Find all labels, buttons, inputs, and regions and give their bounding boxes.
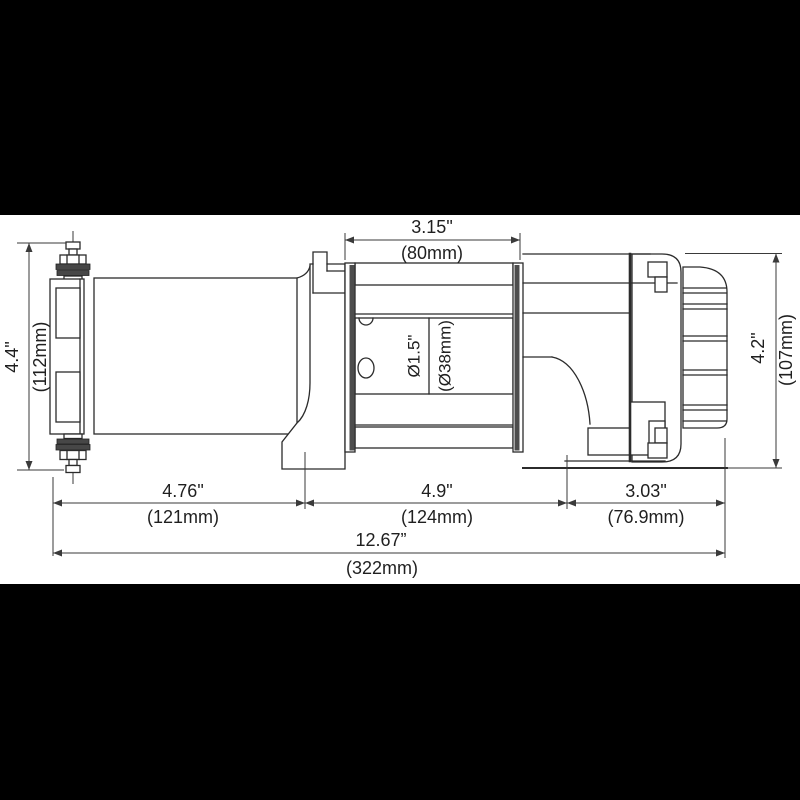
gear-section-mm-label: (76.9mm) (607, 507, 684, 527)
gear-section-inches-label: 3.03" (625, 481, 666, 501)
rope-diameter-mm-label: (Ø38mm) (436, 320, 455, 392)
upper-tie-bar (355, 263, 513, 285)
rope-diameter-inches-label: Ø1.5" (405, 335, 424, 378)
motor-housing (94, 278, 297, 434)
drum-section-inches-label: 4.9" (421, 481, 452, 501)
clutch-lever-top (648, 262, 667, 277)
left-height-mm-label: (112mm) (30, 322, 50, 393)
overall-width-mm-label: (322mm) (346, 558, 418, 578)
right-height-inches-label: 4.2" (748, 332, 768, 363)
fairlead-plate-and-bolts (50, 231, 90, 484)
right-foot-block (588, 428, 630, 455)
drum-width-mm-label: (80mm) (401, 243, 463, 263)
right-height-mm-label: (107mm) (776, 314, 796, 386)
winch-dimension-drawing: Ø1.5" (Ø38mm) (0, 0, 800, 800)
drum-section-mm-label: (124mm) (401, 507, 473, 527)
left-height-inches-label: 4.4" (2, 341, 22, 372)
motor-section-mm-label: (121mm) (147, 507, 219, 527)
drum-barrel (355, 318, 513, 394)
drum-width-inches-label: 3.15" (411, 217, 452, 237)
drum-hole (358, 358, 374, 378)
ribbed-end-cap (683, 267, 727, 428)
lower-tie-bar (355, 427, 513, 448)
motor-section-inches-label: 4.76" (162, 481, 203, 501)
plate-lower-slot (56, 372, 80, 422)
screenshot-root: Ø1.5" (Ø38mm) (0, 0, 800, 800)
plate-upper-slot (56, 288, 80, 338)
overall-width-inches-label: 12.67” (355, 530, 406, 550)
clutch-lever-bottom (648, 443, 667, 458)
